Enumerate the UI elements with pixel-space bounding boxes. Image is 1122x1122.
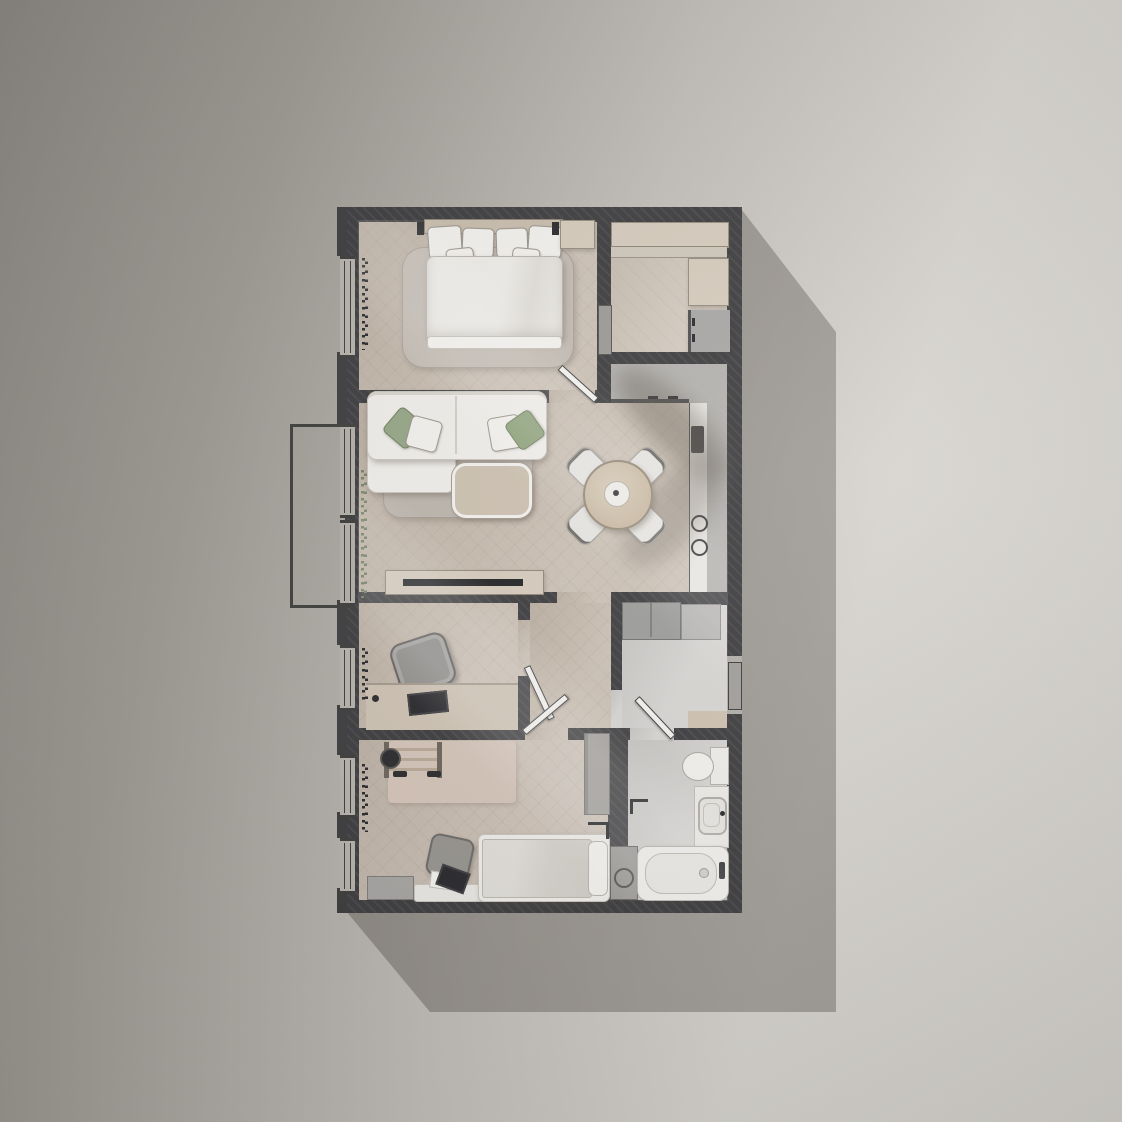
opening-living-hallway <box>557 592 611 603</box>
window-glass <box>344 843 351 889</box>
sink-faucet <box>720 811 725 816</box>
wall-rail-mark <box>588 822 609 839</box>
closet-fridge-cabinet <box>688 310 730 352</box>
table-center-dot <box>613 490 619 496</box>
kids-bed-mattress <box>482 839 592 898</box>
utility-cabinet-dark <box>622 602 681 640</box>
towel-rail <box>630 799 648 814</box>
wall-lamp <box>417 222 424 235</box>
kids-curtain <box>362 764 369 832</box>
window-glass <box>344 650 351 706</box>
study-laptop <box>407 690 449 716</box>
bedroom-curtain <box>362 258 369 350</box>
closet-wardrobe-side <box>688 258 729 306</box>
floor-plan-scene <box>0 0 1122 1122</box>
window-bedroom <box>340 256 355 358</box>
bed-duvet <box>426 256 563 342</box>
facade-pier <box>337 207 347 256</box>
coffee-table <box>452 463 532 518</box>
balcony-railing <box>290 424 355 608</box>
window-kids-2 <box>340 838 355 894</box>
kids-wardrobe <box>584 733 610 815</box>
tub-drain <box>699 868 709 878</box>
toilet-bowl <box>682 752 714 781</box>
entry-door-mat <box>688 711 727 728</box>
desk-lamp <box>372 695 379 702</box>
sink-basin <box>703 803 720 827</box>
cooktop-burner <box>691 539 708 556</box>
kids-bed-pillow <box>588 841 608 896</box>
window-kids-1 <box>340 755 355 818</box>
weight-disc <box>380 748 401 769</box>
sofa-cushion-line <box>455 396 457 454</box>
closet-wardrobe-top <box>611 222 729 248</box>
window-study <box>340 645 355 711</box>
facade-pier <box>337 352 347 424</box>
tv-screen <box>403 579 523 586</box>
cabinet-handle <box>692 318 695 326</box>
bedroom-nightstand <box>560 220 595 249</box>
cabinet-handle <box>692 334 695 342</box>
closet-shelf <box>611 247 727 258</box>
dumbbell <box>427 771 441 777</box>
kids-cabinet <box>367 876 414 900</box>
window-glass <box>344 760 351 813</box>
tub-faucet <box>719 862 725 879</box>
dumbbell <box>393 771 407 777</box>
washer-door <box>614 868 634 888</box>
window-glass <box>344 261 351 353</box>
living-plant <box>361 470 369 598</box>
utility-cabinet-light <box>681 604 721 640</box>
utility-cabinet-divider <box>650 603 652 637</box>
bed-foot-fold <box>427 336 562 349</box>
entry-door-panel <box>728 662 742 710</box>
facade-pier <box>337 705 347 755</box>
closet-sliding-door <box>598 305 612 355</box>
opening-hall-utility <box>611 690 622 728</box>
wall-lamp <box>552 222 559 235</box>
study-curtain <box>362 648 369 704</box>
